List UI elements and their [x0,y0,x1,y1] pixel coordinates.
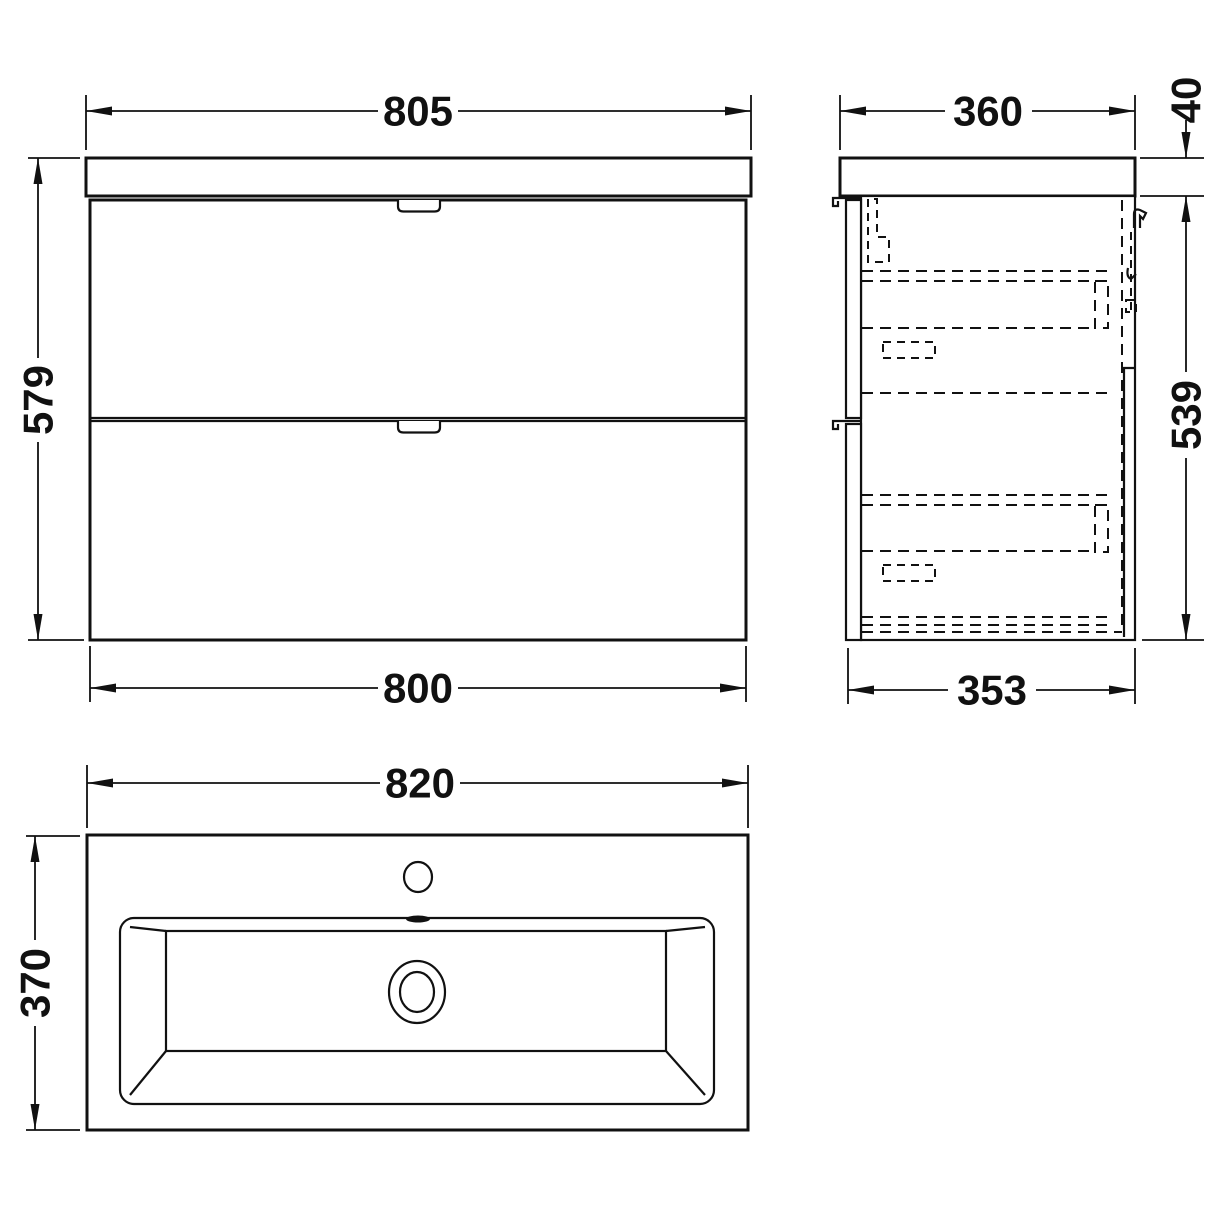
dim-side-cabinet-depth: 353 [848,648,1135,714]
arrow-up-icon [1182,196,1191,222]
dim-plan-basin-depth: 370 [12,836,81,1130]
dim-label-805: 805 [383,88,453,135]
dim-label-370: 370 [12,948,59,1018]
side-top-drawer-front [846,200,861,418]
arrow-down-icon [31,1104,40,1130]
dim-front-overall-height: 579 [15,158,85,640]
arrow-right-icon [1109,686,1135,695]
side-view: 360 40 539 353 [833,77,1210,714]
front-top-drawer-handle-recess [398,200,440,212]
dim-label-40: 40 [1163,77,1210,124]
dim-label-820: 820 [385,760,455,807]
dim-label-800: 800 [383,665,453,712]
arrow-down-icon [1182,614,1191,640]
dim-front-counter-width: 805 [86,88,751,151]
dim-side-heights: 40 539 [1140,77,1210,640]
vanity-unit-technical-drawing: 805 579 800 [0,0,1224,1224]
arrow-up-icon [31,836,40,862]
arrow-left-icon [86,107,112,116]
arrow-right-icon [725,107,751,116]
front-bottom-drawer-handle-recess [398,421,440,433]
arrow-left-icon [840,107,866,116]
plan-waste-drain [389,961,445,1023]
arrow-up-icon [34,158,43,184]
dim-label-579: 579 [15,365,62,435]
dim-plan-basin-width: 820 [87,760,748,829]
arrow-left-icon [87,779,113,788]
dim-label-353: 353 [957,667,1027,714]
plan-tap-hole [404,862,432,892]
plan-view: 820 370 [12,760,749,1131]
arrow-down-icon [34,614,43,640]
arrow-right-icon [720,684,746,693]
dim-side-counter-depth: 360 [840,88,1135,151]
dim-front-cabinet-width: 800 [90,646,746,712]
side-bottom-drawer-front [846,424,861,640]
plan-overflow-slot [406,916,430,923]
arrow-down-icon [1182,132,1191,158]
technical-drawing-page: 805 579 800 [0,0,1224,1224]
side-cabinet-body [861,196,1135,640]
arrow-right-icon [722,779,748,788]
side-countertop [840,158,1135,196]
front-countertop [86,158,751,196]
front-view: 805 579 800 [15,88,752,712]
dim-label-539: 539 [1163,380,1210,450]
arrow-left-icon [90,684,116,693]
arrow-right-icon [1109,107,1135,116]
arrow-left-icon [848,686,874,695]
dim-label-360: 360 [953,88,1023,135]
